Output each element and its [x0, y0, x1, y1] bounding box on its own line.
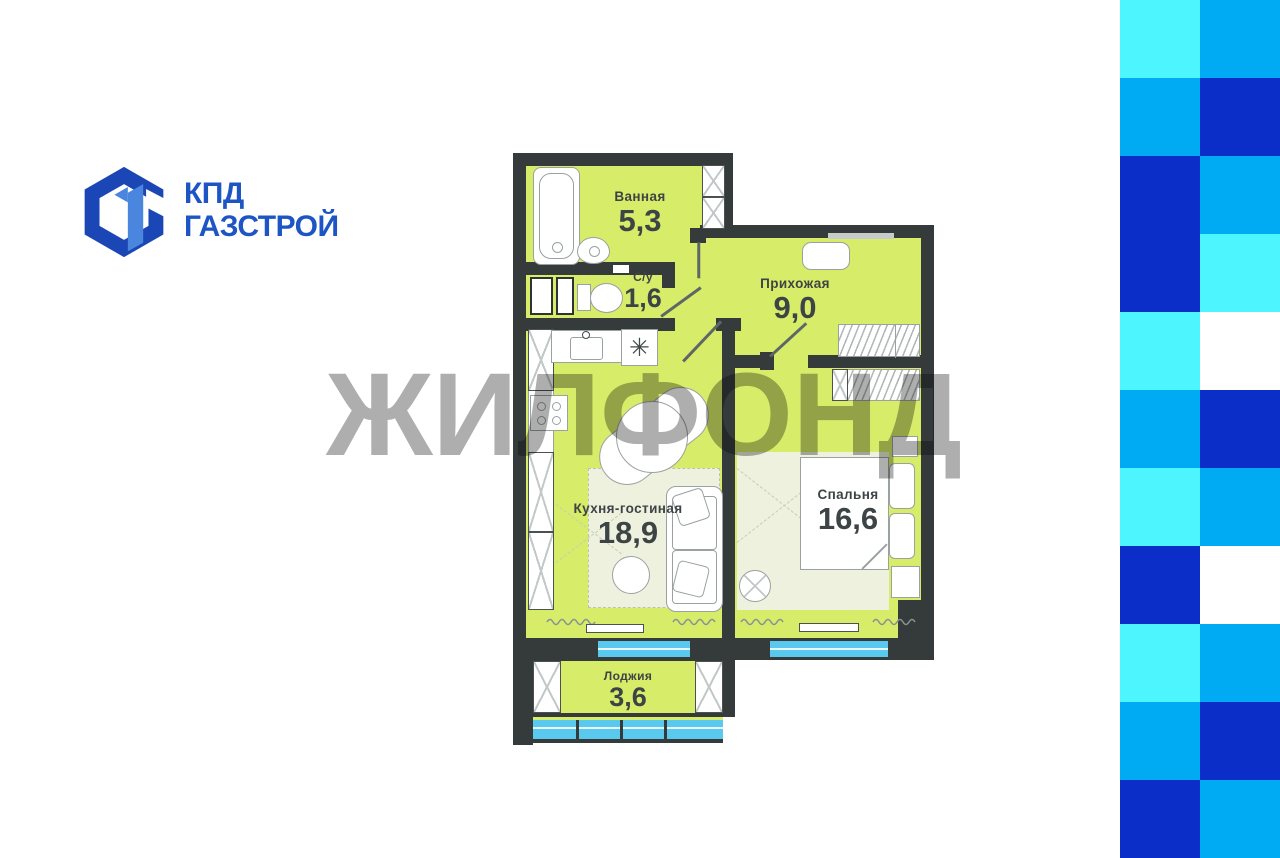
- bathroom-sink: [577, 237, 610, 264]
- room-name: Лоджия: [543, 669, 713, 683]
- checker-cell: [1200, 702, 1280, 780]
- room-label-wc: С/у 1,6: [558, 270, 728, 313]
- room-area: 1,6: [558, 284, 728, 313]
- checker-cell: [1120, 0, 1200, 78]
- logo-hexagon-ring: [85, 167, 164, 257]
- developer-logo-mark: [76, 164, 172, 260]
- checker-cell: [1120, 312, 1200, 390]
- flyer-canvas: { "logo": { "line1": "КПД", "line2": "ГА…: [0, 0, 1280, 858]
- sink-drain: [589, 246, 600, 257]
- room-name: Кухня-гостиная: [543, 501, 713, 516]
- wall: [724, 153, 733, 229]
- room-area: 3,6: [543, 683, 713, 712]
- checker-cell: [1120, 702, 1200, 780]
- room-area: 5,3: [555, 204, 725, 237]
- checker-cell: [1120, 390, 1200, 468]
- checker-cell: [1120, 468, 1200, 546]
- window-mullion: [620, 720, 623, 739]
- radiator-wave: [872, 617, 918, 627]
- room-area: 16,6: [763, 502, 933, 535]
- hallway-bench: [802, 242, 850, 270]
- room-label-bathroom: Ванная 5,3: [555, 189, 725, 237]
- checker-cell: [1200, 546, 1280, 624]
- entry-door-marker: [828, 233, 894, 239]
- room-label-bedroom: Спальня 16,6: [763, 487, 933, 535]
- checker-pattern: [1120, 0, 1280, 858]
- developer-logo: КПД ГАЗСТРОЙ: [76, 164, 172, 265]
- checker-cell: [1200, 312, 1280, 390]
- wall: [513, 153, 733, 166]
- logo-one-flag: [114, 187, 127, 202]
- windowsill: [799, 623, 859, 632]
- radiator-wave: [740, 617, 784, 627]
- checker-cell: [1120, 156, 1200, 234]
- checker-cell: [1200, 780, 1280, 858]
- radiator-wave: [672, 617, 718, 627]
- checker-cell: [1120, 234, 1200, 312]
- nightstand: [891, 566, 920, 598]
- floor-lamp: [739, 570, 771, 602]
- watermark: ЖИЛФОНД: [326, 347, 962, 483]
- checker-cell: [1120, 546, 1200, 624]
- checker-cell: [1200, 156, 1280, 234]
- developer-logo-text: КПД ГАЗСТРОЙ: [184, 177, 339, 243]
- checker-cell: [1120, 624, 1200, 702]
- checker-cell: [1200, 468, 1280, 546]
- checker-cell: [1120, 78, 1200, 156]
- wall: [513, 717, 533, 745]
- window-glass-line: [598, 648, 690, 650]
- loggia-window-band: [533, 720, 723, 739]
- room-label-kitchen: Кухня-гостиная 18,9: [543, 501, 713, 549]
- checker-cell: [1200, 0, 1280, 78]
- coffee-table: [612, 556, 650, 594]
- checker-cell: [1120, 780, 1200, 858]
- room-area: 9,0: [710, 291, 880, 324]
- window-glass-line: [533, 727, 723, 729]
- window-mullion: [664, 720, 667, 739]
- blanket-fold: [863, 544, 888, 569]
- window-glass-line: [770, 648, 888, 650]
- logo-text-line2: ГАЗСТРОЙ: [184, 210, 339, 243]
- room-name: Спальня: [763, 487, 933, 502]
- windowsill: [586, 624, 644, 633]
- room-label-hallway: Прихожая 9,0: [710, 276, 880, 324]
- checker-cell: [1200, 78, 1280, 156]
- riser-box: [530, 277, 553, 315]
- loggia-window-base: [533, 739, 723, 743]
- wall: [700, 225, 934, 238]
- window-mullion: [576, 720, 579, 739]
- checker-cell: [1200, 234, 1280, 312]
- checker-cell: [1200, 624, 1280, 702]
- room-label-loggia: Лоджия 3,6: [543, 669, 713, 712]
- faucet: [582, 331, 590, 339]
- room-name: Прихожая: [710, 276, 880, 291]
- checker-cell: [1200, 390, 1280, 468]
- room-area: 18,9: [543, 516, 713, 549]
- room-name: С/у: [558, 270, 728, 284]
- bathtub-drain: [552, 242, 563, 253]
- logo-text-line1: КПД: [184, 177, 339, 210]
- logo-one-bar: [128, 184, 143, 251]
- wall-column: [898, 600, 934, 660]
- room-name: Ванная: [555, 189, 725, 204]
